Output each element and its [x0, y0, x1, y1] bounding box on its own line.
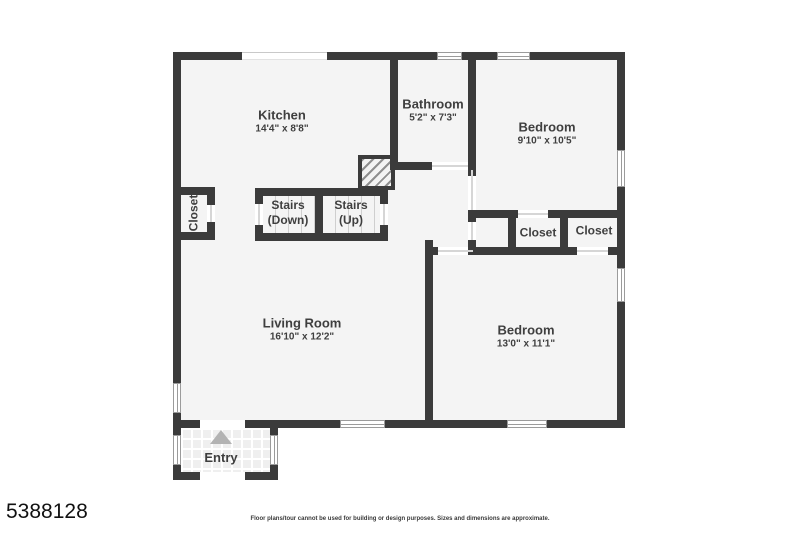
bathroom-wall: [390, 162, 432, 170]
stairs-down-label: Stairs (Down): [268, 198, 309, 228]
wall: [245, 420, 340, 428]
bedroom-top-dims: 9'10" x 10'5": [518, 136, 577, 149]
door-line: [258, 204, 260, 225]
wall: [173, 52, 181, 383]
porch-right-window: [270, 435, 278, 465]
porch-wall: [245, 472, 278, 480]
bedroom-bottom-dims: 13'0" x 11'1": [497, 339, 555, 352]
stairs-wall: [380, 225, 388, 233]
porch-wall: [173, 472, 200, 480]
bathroom-label: Bathroom 5'2" x 7'3": [402, 97, 463, 126]
kitchen-dims: 14'4" x 8'8": [255, 124, 308, 137]
bathroom-name: Bathroom: [402, 97, 463, 113]
wall: [173, 420, 200, 428]
stairs-divider-wall: [315, 188, 323, 241]
door-line: [383, 204, 385, 225]
bedroom-bottom-window: [507, 420, 547, 428]
bathroom-window: [437, 52, 462, 60]
bedroom-top-name: Bedroom: [518, 120, 577, 136]
bedroom-bottom-side-window: [617, 268, 625, 302]
bedroom-top-side-window: [617, 150, 625, 187]
entry-door-opening: [200, 420, 245, 428]
bedroom-bottom-label: Bedroom 13'0" x 11'1": [497, 323, 555, 352]
stairs-down-line1: Stairs: [268, 198, 309, 213]
stairs-up-label: Stairs (Up): [334, 198, 367, 228]
porch-left-window: [173, 435, 181, 465]
door-line: [471, 170, 473, 210]
living-room-name: Living Room: [263, 316, 342, 332]
bathroom-dims: 5'2" x 7'3": [402, 113, 463, 126]
stairs-down-line2: (Down): [268, 213, 309, 228]
stairs-up-line2: (Up): [334, 213, 367, 228]
entry-label: Entry: [204, 450, 237, 466]
closet-left-wall: [207, 195, 215, 205]
bathroom-bedroom-wall: [468, 52, 476, 176]
hall-wall: [468, 210, 476, 222]
bedroom-top-wall: [473, 247, 577, 255]
stairs-up-line1: Stairs: [334, 198, 367, 213]
wall: [547, 420, 625, 428]
bedroom-top-label: Bedroom 9'10" x 10'5": [518, 120, 577, 149]
wall: [617, 302, 625, 428]
door-line: [210, 205, 212, 222]
wall: [385, 420, 507, 428]
door-line: [518, 213, 548, 215]
stairs-wall: [255, 196, 263, 204]
wall: [617, 52, 625, 150]
door-line: [432, 165, 468, 167]
bedroom-closet-wall: [548, 210, 625, 218]
kitchen-wall-opening: [242, 52, 327, 60]
living-room-side-window: [173, 383, 181, 413]
living-room-label: Living Room 16'10" x 12'2": [263, 316, 342, 345]
porch-step-opening: [200, 472, 245, 480]
bedroom-top-window: [497, 52, 530, 60]
door-line: [471, 222, 473, 240]
stairs-wall: [255, 225, 263, 233]
bedroom-top-wall: [608, 247, 625, 255]
closet-middle-label: Closet: [520, 226, 557, 241]
north-arrow-icon: [210, 430, 232, 444]
living-room-dims: 16'10" x 12'2": [263, 332, 342, 345]
living-room-window: [340, 420, 385, 428]
closet-wall: [560, 218, 568, 247]
wall: [173, 52, 242, 60]
listing-id: 5388128: [6, 500, 88, 524]
floor-plan: Kitchen 14'4" x 8'8" Bathroom 5'2" x 7'3…: [0, 0, 800, 533]
living-bedroom-wall: [425, 240, 433, 428]
closet-wall: [508, 218, 516, 247]
door-line: [577, 250, 608, 252]
closet-left-wall: [207, 222, 215, 232]
wall: [530, 52, 625, 60]
bedroom-bottom-name: Bedroom: [497, 323, 555, 339]
closet-left-label: Closet: [187, 195, 202, 232]
kitchen-name: Kitchen: [255, 108, 308, 124]
wall: [327, 52, 437, 60]
disclaimer-text: Floor plans/tour cannot be used for buil…: [250, 516, 549, 522]
closet-right-label: Closet: [576, 224, 613, 239]
closet-left-wall: [173, 232, 215, 240]
stairs-wall: [380, 196, 388, 204]
kitchen-label: Kitchen 14'4" x 8'8": [255, 108, 308, 137]
door-line: [438, 250, 473, 252]
kitchen-bathroom-wall: [390, 52, 398, 170]
bedroom-closet-wall: [476, 210, 518, 218]
wall: [617, 187, 625, 268]
